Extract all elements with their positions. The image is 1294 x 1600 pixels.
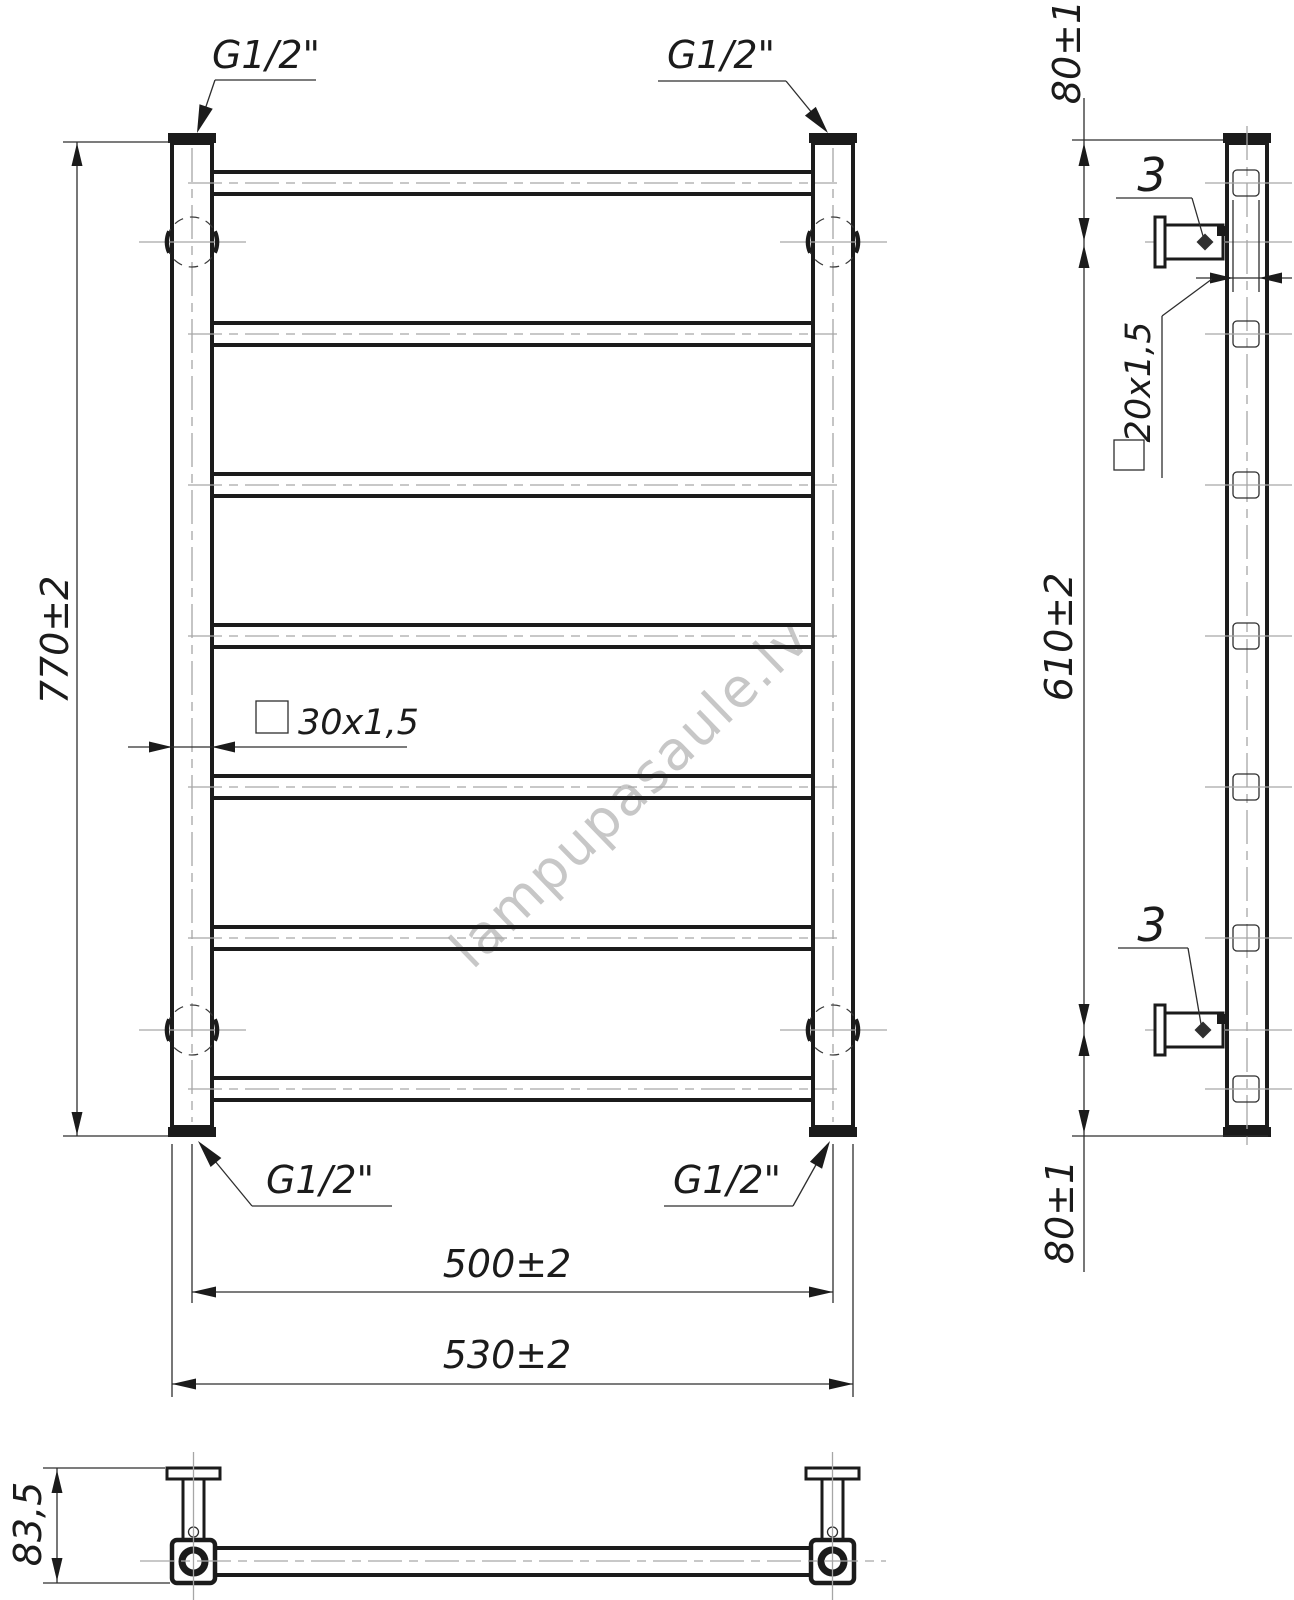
dimension-bracket-span-610: 610±2: [1037, 242, 1090, 1030]
circle-arc: [856, 231, 858, 252]
circle-arc: [215, 1019, 217, 1040]
dimension-arrow: [1079, 143, 1090, 166]
dimension-text: 80±1: [1038, 1160, 1082, 1264]
thread-callout-top-left: G1/2": [190, 33, 320, 135]
leader-arrow: [810, 1138, 836, 1169]
technical-drawing: lampupasaule.lv: [0, 0, 1294, 1600]
wall-bracket-top: [1145, 217, 1292, 267]
leader-arrow: [190, 104, 212, 135]
bracket-stem: [1163, 1013, 1223, 1047]
dimension-text: 83,5: [6, 1482, 50, 1567]
circle-arc: [808, 1019, 810, 1040]
dimension-height-770: 770±2: [33, 142, 170, 1136]
dimension-text: 530±2: [443, 1333, 572, 1377]
circle-arc: [856, 1019, 858, 1040]
dimension-arrow: [829, 1379, 853, 1390]
right-bottom-cap: [809, 1127, 857, 1137]
dimension-arrow: [1079, 1033, 1090, 1056]
bracket-tab: [1217, 226, 1227, 236]
side-view: 80±1 610±2 80±1 3 3: [1037, 0, 1292, 1272]
leader-arrow: [193, 1137, 222, 1167]
right-top-cap: [809, 133, 857, 143]
bracket-stem: [1163, 225, 1223, 259]
front-view: G1/2" G1/2" G1/2" G1/2": [33, 33, 887, 1397]
watermark-text: lampupasaule.lv: [438, 605, 823, 980]
thread-label: G1/2": [212, 33, 320, 77]
bracket-flange: [1155, 217, 1165, 267]
callout-text: 3: [1137, 898, 1166, 952]
dimension-arrow: [72, 1112, 83, 1135]
dimension-depth-83-5: 83,5: [6, 1468, 170, 1583]
dimension-arrow: [1079, 218, 1090, 241]
dimension-text: 80±1: [1045, 0, 1089, 104]
dimension-arrow: [72, 143, 83, 166]
bracket-flange: [1155, 1005, 1165, 1055]
callout-text: 3: [1137, 148, 1166, 202]
dimension-text: 20x1,5: [1119, 322, 1159, 443]
circle-arc: [215, 231, 217, 252]
left-bottom-cap: [168, 1127, 216, 1137]
thread-label: G1/2": [673, 1158, 781, 1202]
dimension-arrow: [172, 1379, 196, 1390]
front-centerlines: [188, 148, 837, 1122]
dimension-text: 500±2: [443, 1242, 572, 1286]
square-section-symbol: [256, 701, 288, 733]
dimension-arrow: [212, 742, 235, 753]
dimension-arrow: [52, 1470, 63, 1493]
dimension-text: 770±2: [33, 576, 77, 705]
dimension-arrow: [149, 742, 172, 753]
dimension-top-offset-80: 80±1: [1045, 0, 1223, 242]
wall-bracket-bottom: [1145, 1005, 1292, 1055]
leader-arrow: [805, 107, 834, 138]
thread-label: G1/2": [667, 33, 775, 77]
dimension-arrow: [1079, 1004, 1090, 1027]
dimension-arrow: [52, 1558, 63, 1581]
callout-leader: [1162, 279, 1212, 316]
dimension-arrow: [809, 1287, 833, 1298]
dimension-text: 30x1,5: [298, 703, 419, 743]
thread-callout-top-right: G1/2": [658, 33, 833, 137]
bottom-view: 83,5: [6, 1452, 886, 1600]
bracket-tab: [1217, 1014, 1227, 1024]
dimension-arrow: [1079, 1110, 1090, 1133]
circle-arc: [167, 231, 169, 252]
thread-callout-bottom-left: G1/2": [193, 1137, 392, 1206]
circle-arc: [808, 231, 810, 252]
left-top-cap: [168, 133, 216, 143]
dimension-arrow: [1079, 245, 1090, 268]
thread-callout-bottom-right: G1/2": [664, 1138, 836, 1207]
square-section-symbol: [1114, 440, 1144, 470]
dimension-text: 610±2: [1037, 573, 1081, 702]
thread-label: G1/2": [266, 1158, 374, 1202]
drawing-page: lampupasaule.lv: [0, 0, 1294, 1600]
circle-arc: [167, 1019, 169, 1040]
dimension-arrow: [192, 1287, 216, 1298]
